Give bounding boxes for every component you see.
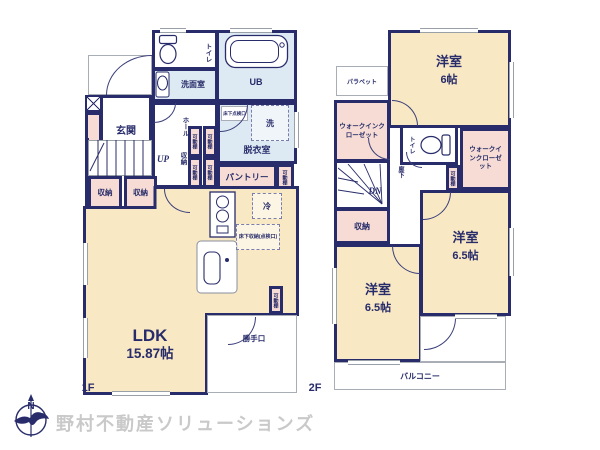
movable-shelf-label: 可動棚 <box>450 171 457 186</box>
floorplan-canvas: トイレ 洗面室 UB 玄関 ホール UP 収納 床下点検口 洗 脱衣室 可動棚 … <box>0 0 600 450</box>
compass-icon: N <box>8 392 54 444</box>
fridge-box: 冷 <box>252 193 282 219</box>
window-mark <box>294 112 299 148</box>
movable-shelf: 可動棚 <box>269 286 283 314</box>
window-mark <box>230 28 272 33</box>
hall-label: ホール <box>177 112 188 142</box>
movable-shelf-label: 可動棚 <box>192 165 199 180</box>
window-mark <box>160 28 186 33</box>
sink-icon <box>155 71 170 98</box>
brand-logo-text: 野村不動産ソリューションズ <box>56 410 315 436</box>
window-mark <box>509 228 514 276</box>
window-mark <box>420 28 478 33</box>
ldk-name-label: LDK <box>95 326 205 346</box>
compass-n-label: N <box>27 401 34 412</box>
movable-shelf: 可動棚 <box>446 165 460 191</box>
window-mark <box>509 62 514 118</box>
hall-closet-label: 収納 <box>175 144 186 172</box>
toilet-icon <box>418 131 452 159</box>
movable-shelf-label: 可動棚 <box>282 170 289 185</box>
backdoor-label: 勝手口 <box>226 334 282 343</box>
unit-bath-label: UB <box>236 77 276 88</box>
stairs-2f-treads <box>338 164 386 206</box>
entrance-label: 玄関 <box>102 126 150 138</box>
stove-icon <box>209 191 236 238</box>
movable-shelf-label: 可動棚 <box>192 134 199 149</box>
kitchen-sink-icon <box>196 240 238 294</box>
movable-shelf: 可動棚 <box>188 157 202 188</box>
walk-in-closet-label: ウォークインクローゼット <box>469 146 503 172</box>
window-mark <box>83 243 88 285</box>
movable-shelf-label: 可動棚 <box>207 134 214 149</box>
bedroom-c-size: 6.5帖 <box>334 302 422 315</box>
movable-shelf-label: 可動棚 <box>273 293 280 308</box>
parapet: パラペット <box>336 66 388 96</box>
floor2-label: 2F <box>303 382 327 395</box>
dressing-room-label: 脱衣室 <box>226 145 288 156</box>
movable-shelf-label: 可動棚 <box>207 165 214 180</box>
underfloor-storage-box: 床下収納(点検口) <box>236 224 280 250</box>
toilet-icon <box>158 34 180 66</box>
floor1-label: 1F <box>76 382 100 395</box>
window-mark <box>83 318 88 358</box>
window-mark <box>332 268 337 324</box>
window-mark <box>112 391 170 396</box>
bedroom-b-name: 洋室 <box>420 230 511 246</box>
bedroom-b-size: 6.5帖 <box>420 250 511 263</box>
closet-2f: 収納 <box>334 208 390 244</box>
balcony: バルコニー <box>334 362 506 390</box>
window-mark <box>348 360 400 365</box>
movable-shelf: 可動棚 <box>188 126 202 157</box>
window-mark <box>455 314 497 319</box>
stairs-up-label: UP <box>152 154 174 165</box>
door-arc <box>406 152 422 168</box>
movable-shelf: 可動棚 <box>203 157 217 188</box>
toilet-label-1f: トイレ <box>199 36 211 70</box>
washer-box: 洗 <box>251 105 289 141</box>
stairs-down-label: DN <box>362 186 388 197</box>
bathtub-icon <box>224 34 290 70</box>
stairs-1f <box>88 140 152 176</box>
bedroom-a-size: 6帖 <box>394 74 504 87</box>
bedroom-c-name: 洋室 <box>334 282 422 298</box>
walk-in-closet-right: ウォークインクローゼット <box>460 128 511 190</box>
ldk-size-label: 15.87帖 <box>95 346 205 362</box>
bedroom-a-name: 洋室 <box>394 54 504 70</box>
movable-shelf: 可動棚 <box>203 126 217 157</box>
washroom-label: 洗面室 <box>170 80 216 90</box>
